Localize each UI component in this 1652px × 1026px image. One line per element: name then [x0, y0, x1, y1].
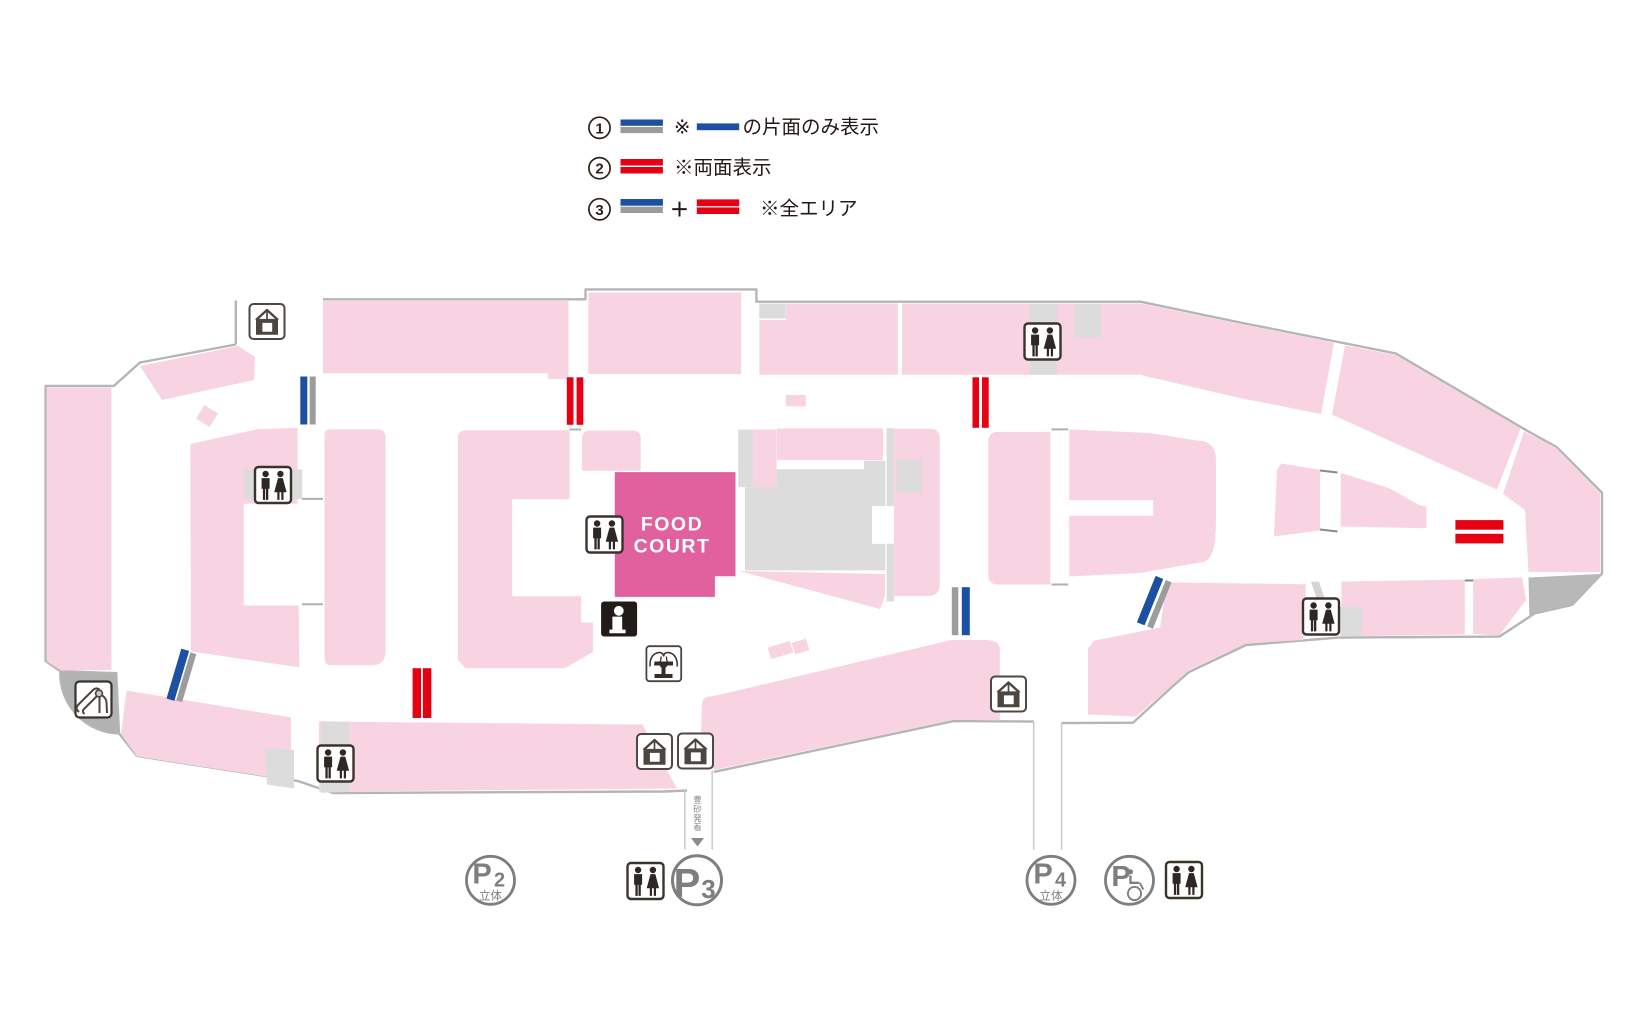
svg-text:P: P: [1111, 861, 1130, 893]
svg-text:COURT: COURT: [634, 536, 711, 558]
svg-text:3: 3: [701, 874, 715, 904]
svg-text:3: 3: [595, 202, 603, 219]
svg-text:FOOD: FOOD: [641, 514, 703, 536]
svg-text:＋: ＋: [670, 200, 689, 221]
svg-text:P: P: [1033, 859, 1052, 891]
svg-text:※両面表示: ※両面表示: [674, 157, 772, 179]
svg-text:4: 4: [1055, 870, 1067, 892]
svg-text:2: 2: [494, 870, 505, 892]
svg-text:P: P: [472, 859, 491, 891]
svg-text:の片面のみ表示: の片面のみ表示: [743, 117, 880, 139]
svg-text:着: 着: [693, 822, 702, 832]
svg-text:P: P: [674, 862, 701, 906]
svg-text:2: 2: [595, 161, 603, 178]
svg-text:立体: 立体: [1040, 889, 1063, 903]
svg-text:※: ※: [674, 117, 690, 139]
svg-text:1: 1: [595, 120, 603, 137]
svg-text:※全エリア: ※全エリア: [760, 198, 858, 220]
svg-text:立体: 立体: [479, 889, 502, 903]
